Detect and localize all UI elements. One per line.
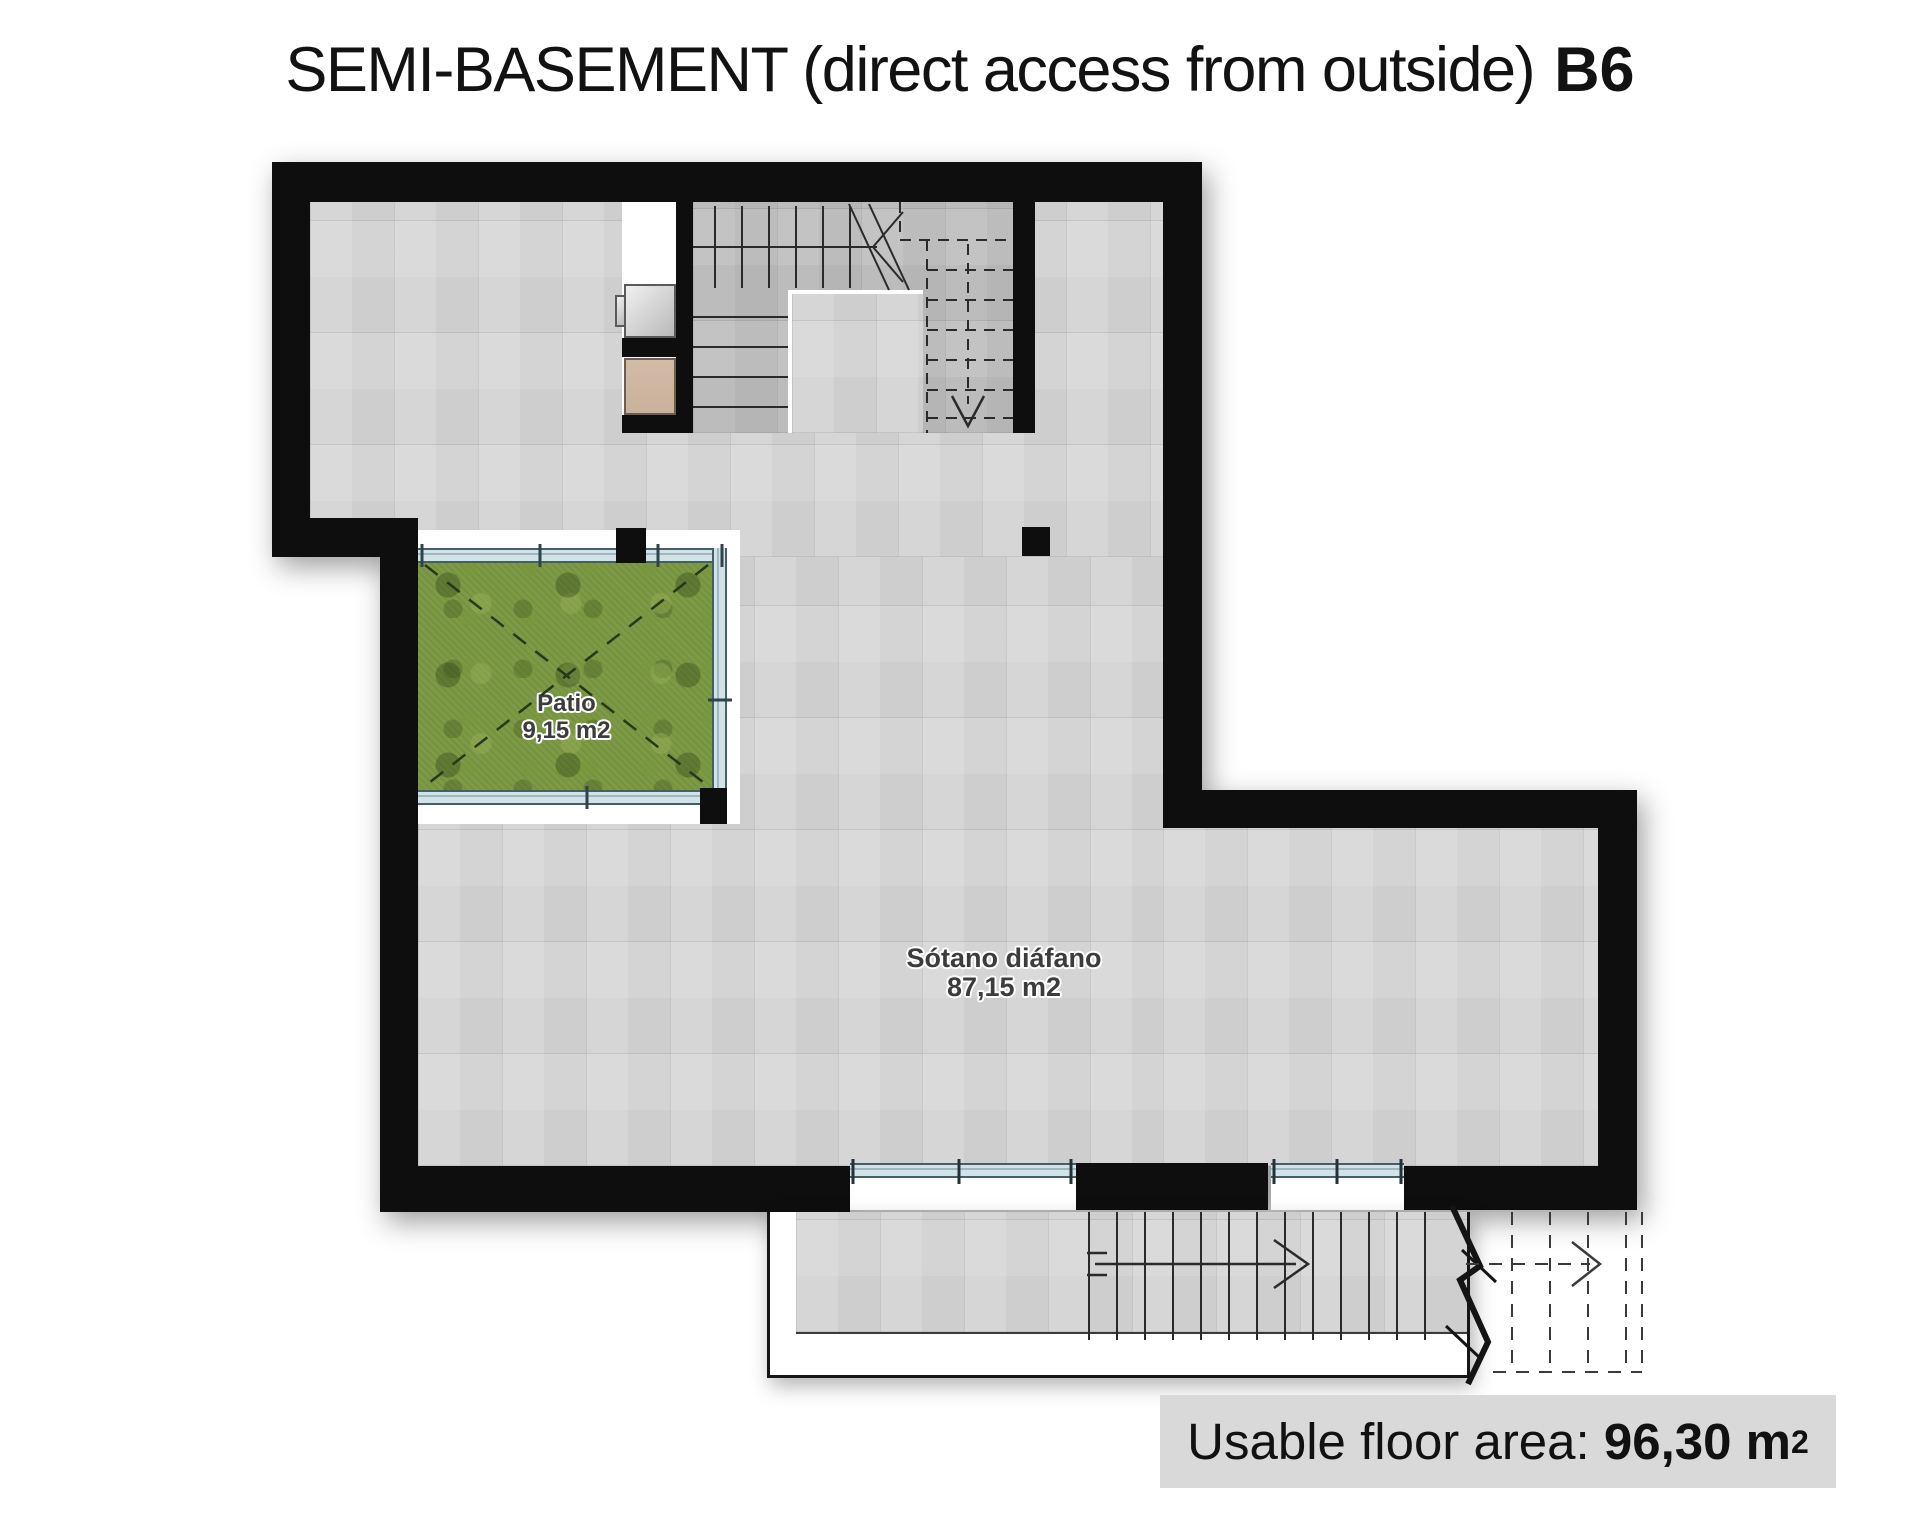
closet-side-wall xyxy=(676,202,693,433)
patio-room-name: Patio xyxy=(418,690,715,717)
floorplan-page: SEMI-BASEMENT (direct access from outsid… xyxy=(0,0,1920,1521)
outer-wall-left-upper xyxy=(272,162,310,557)
closet-mid-wall xyxy=(622,338,676,357)
pillar xyxy=(1022,527,1050,556)
outer-wall-step xyxy=(272,518,418,557)
stair-landing-notch xyxy=(788,290,923,433)
appliance-unit-tan xyxy=(624,358,676,415)
usable-area-value: 96,30 m xyxy=(1604,1412,1791,1471)
patio-pier-top xyxy=(616,528,646,563)
outer-wall-left-lower xyxy=(380,557,418,1212)
window-2 xyxy=(1271,1163,1404,1178)
closet-bottom-wall xyxy=(622,415,693,433)
sotano-room-area: 87,15 m2 xyxy=(844,973,1164,1002)
patio-window-right xyxy=(712,548,727,803)
patio-room-label: Patio 9,15 m2 xyxy=(418,690,715,744)
usable-area-label: Usable floor area: xyxy=(1187,1412,1604,1471)
terrace-floor xyxy=(796,1212,1467,1334)
extension-wall-bottom xyxy=(1404,1166,1637,1210)
patio-window-bottom xyxy=(418,790,714,805)
sotano-room-label: Sótano diáfano 87,15 m2 xyxy=(844,944,1164,1002)
usable-area-box: Usable floor area: 96,30 m2 xyxy=(1160,1395,1836,1488)
appliance-unit-gray xyxy=(624,284,676,338)
patio-window-top xyxy=(418,548,726,563)
outer-wall-top xyxy=(272,162,1202,202)
floor-extension xyxy=(1163,828,1598,1166)
window-1 xyxy=(850,1163,1076,1178)
window-pier-wall xyxy=(1076,1163,1268,1210)
outer-wall-bottom-left xyxy=(380,1166,850,1212)
patio-room-area: 9,15 m2 xyxy=(418,717,715,744)
extension-wall-right xyxy=(1598,790,1637,1210)
patio-pier-bottom-right xyxy=(700,788,727,824)
exterior-terrace xyxy=(767,1212,1470,1378)
outer-wall-right-upper xyxy=(1163,162,1202,828)
sotano-room-name: Sótano diáfano xyxy=(844,944,1164,973)
extension-wall-top xyxy=(1163,790,1637,828)
stairwell-right-wall xyxy=(1013,202,1035,433)
patio-grass xyxy=(418,558,715,792)
